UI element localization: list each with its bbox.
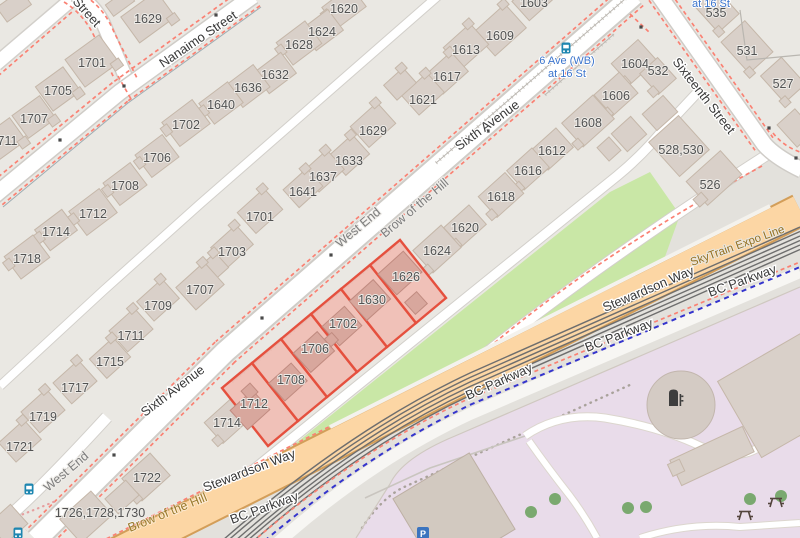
svg-text:1624: 1624 (423, 244, 451, 258)
svg-text:1715: 1715 (96, 355, 124, 369)
svg-text:1628: 1628 (285, 38, 313, 52)
svg-text:1604: 1604 (621, 57, 649, 71)
svg-text:at 16 St: at 16 St (548, 68, 586, 80)
svg-text:1637: 1637 (309, 170, 337, 184)
svg-text:1618: 1618 (487, 190, 515, 204)
svg-text:1714: 1714 (213, 416, 241, 430)
svg-text:1717: 1717 (61, 381, 89, 395)
svg-text:1702: 1702 (329, 317, 357, 331)
svg-text:527: 527 (773, 77, 794, 91)
svg-text:1709: 1709 (144, 299, 172, 313)
svg-text:1608: 1608 (574, 116, 602, 130)
svg-text:1726,1728,1730: 1726,1728,1730 (55, 506, 145, 520)
svg-text:535: 535 (706, 6, 727, 20)
svg-text:1708: 1708 (111, 179, 139, 193)
svg-text:1620: 1620 (451, 221, 479, 235)
svg-text:1616: 1616 (514, 164, 542, 178)
svg-text:531: 531 (737, 44, 758, 58)
svg-text:1714: 1714 (42, 225, 70, 239)
svg-text:1613: 1613 (452, 43, 480, 57)
svg-text:532: 532 (648, 64, 669, 78)
svg-text:1707: 1707 (20, 112, 48, 126)
svg-text:1712: 1712 (79, 207, 107, 221)
svg-text:1701: 1701 (78, 56, 106, 70)
svg-text:1633: 1633 (335, 154, 363, 168)
svg-text:1617: 1617 (433, 70, 461, 84)
svg-text:1708: 1708 (277, 373, 305, 387)
svg-text:1603: 1603 (520, 0, 548, 10)
svg-text:1612: 1612 (538, 144, 566, 158)
svg-text:1629: 1629 (134, 12, 162, 26)
svg-text:1629: 1629 (359, 124, 387, 138)
svg-text:1640: 1640 (207, 98, 235, 112)
svg-text:1701: 1701 (246, 210, 274, 224)
svg-text:1630: 1630 (358, 293, 386, 307)
svg-text:1706: 1706 (143, 151, 171, 165)
svg-text:1626: 1626 (392, 270, 420, 284)
svg-text:1721: 1721 (6, 440, 34, 454)
svg-text:1707: 1707 (186, 283, 214, 297)
svg-text:1621: 1621 (409, 93, 437, 107)
svg-text:1719: 1719 (29, 410, 57, 424)
svg-text:1702: 1702 (172, 118, 200, 132)
svg-text:P: P (420, 529, 426, 538)
svg-text:1641: 1641 (289, 185, 317, 199)
svg-text:1722: 1722 (133, 471, 161, 485)
svg-text:1711: 1711 (0, 134, 17, 148)
svg-text:1632: 1632 (261, 68, 289, 82)
svg-text:1609: 1609 (486, 29, 514, 43)
svg-text:1636: 1636 (234, 81, 262, 95)
svg-text:1620: 1620 (330, 2, 358, 16)
svg-text:1703: 1703 (218, 245, 246, 259)
svg-text:1706: 1706 (301, 342, 329, 356)
svg-text:1718: 1718 (13, 252, 41, 266)
svg-text:1712: 1712 (240, 397, 268, 411)
svg-text:1711: 1711 (118, 329, 145, 343)
svg-text:6 Ave (WB): 6 Ave (WB) (539, 55, 594, 67)
svg-text:526: 526 (700, 178, 721, 192)
svg-text:1606: 1606 (602, 89, 630, 103)
svg-text:528,530: 528,530 (658, 143, 703, 157)
svg-text:1705: 1705 (44, 84, 72, 98)
svg-text:1624: 1624 (308, 25, 336, 39)
